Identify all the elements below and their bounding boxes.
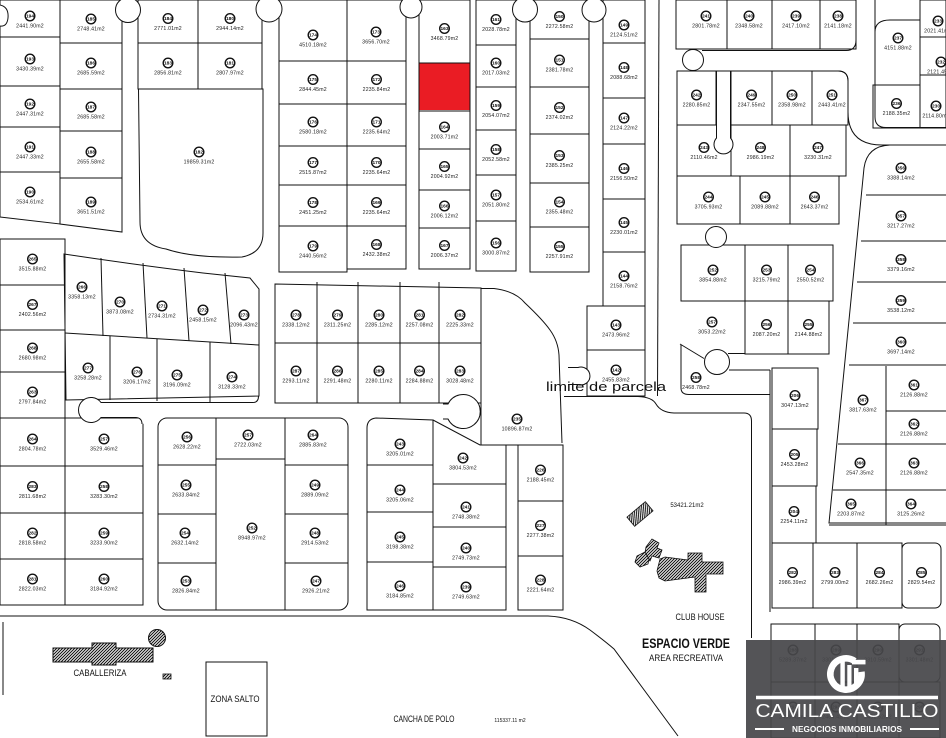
svg-text:359: 359 bbox=[897, 298, 905, 304]
svg-text:NEGOCIOS INMOBILIARIOS: NEGOCIOS INMOBILIARIOS bbox=[792, 724, 902, 734]
svg-text:2311.25m2: 2311.25m2 bbox=[324, 323, 351, 329]
svg-text:3000.87m2: 3000.87m2 bbox=[482, 251, 510, 257]
svg-text:2338.12m2: 2338.12m2 bbox=[282, 323, 310, 329]
svg-text:157: 157 bbox=[492, 193, 500, 199]
svg-text:175: 175 bbox=[309, 77, 317, 83]
svg-text:2355.48m2: 2355.48m2 bbox=[546, 210, 574, 216]
svg-text:277: 277 bbox=[84, 366, 92, 372]
svg-text:153: 153 bbox=[555, 153, 563, 159]
svg-text:2203.87m2: 2203.87m2 bbox=[837, 512, 865, 518]
svg-text:284: 284 bbox=[875, 570, 883, 576]
svg-text:CANCHA DE POLO: CANCHA DE POLO bbox=[394, 714, 455, 724]
svg-text:282: 282 bbox=[788, 570, 796, 576]
svg-text:241: 241 bbox=[702, 14, 710, 20]
svg-text:254: 254 bbox=[806, 268, 814, 274]
svg-text:159: 159 bbox=[492, 103, 500, 109]
svg-text:257: 257 bbox=[100, 437, 108, 443]
svg-text:242: 242 bbox=[459, 456, 467, 462]
svg-text:2580.18m2: 2580.18m2 bbox=[299, 130, 327, 136]
svg-text:259: 259 bbox=[100, 531, 108, 537]
svg-text:171: 171 bbox=[372, 120, 380, 126]
svg-text:161: 161 bbox=[492, 17, 500, 23]
svg-text:2088.68m2: 2088.68m2 bbox=[610, 75, 638, 81]
svg-text:2272.58m2: 2272.58m2 bbox=[546, 24, 574, 30]
svg-text:2126.88m2: 2126.88m2 bbox=[900, 432, 928, 438]
svg-text:169: 169 bbox=[372, 200, 380, 206]
svg-text:255: 255 bbox=[804, 322, 812, 328]
svg-text:2822.03m2: 2822.03m2 bbox=[19, 587, 47, 593]
svg-text:2291.48m2: 2291.48m2 bbox=[324, 379, 352, 385]
svg-text:275: 275 bbox=[173, 373, 181, 379]
svg-text:142: 142 bbox=[612, 368, 620, 374]
svg-text:2432.38m2: 2432.38m2 bbox=[363, 252, 391, 258]
svg-text:166: 166 bbox=[440, 204, 448, 210]
svg-text:CAMILA CASTILLO: CAMILA CASTILLO bbox=[756, 700, 939, 721]
svg-text:3804.53m2: 3804.53m2 bbox=[449, 466, 477, 472]
svg-text:2280.11m2: 2280.11m2 bbox=[365, 379, 392, 385]
svg-text:268: 268 bbox=[28, 346, 36, 352]
svg-text:155: 155 bbox=[555, 244, 563, 250]
svg-text:2230.01m2: 2230.01m2 bbox=[610, 230, 638, 236]
svg-text:3206.17m2: 3206.17m2 bbox=[123, 380, 151, 386]
svg-text:192: 192 bbox=[26, 102, 34, 108]
svg-text:2358.98m2: 2358.98m2 bbox=[778, 103, 806, 109]
svg-text:2889.09m2: 2889.09m2 bbox=[301, 493, 329, 499]
svg-text:2844.45m2: 2844.45m2 bbox=[299, 87, 327, 93]
svg-text:255: 255 bbox=[182, 483, 190, 489]
svg-text:3198.38m2: 3198.38m2 bbox=[386, 545, 414, 551]
svg-text:2685.58m2: 2685.58m2 bbox=[77, 115, 105, 121]
svg-text:3258.28m2: 3258.28m2 bbox=[74, 376, 102, 382]
svg-text:258: 258 bbox=[692, 375, 700, 381]
svg-text:285: 285 bbox=[917, 570, 925, 576]
svg-text:266: 266 bbox=[78, 285, 86, 291]
svg-text:150: 150 bbox=[555, 14, 563, 20]
svg-text:245: 245 bbox=[761, 195, 769, 201]
svg-text:244: 244 bbox=[396, 488, 404, 494]
svg-text:2453.28m2: 2453.28m2 bbox=[781, 462, 809, 468]
svg-text:2856.81m2: 2856.81m2 bbox=[154, 71, 182, 77]
svg-text:168: 168 bbox=[372, 242, 380, 248]
svg-text:174: 174 bbox=[309, 33, 317, 39]
svg-text:2158.76m2: 2158.76m2 bbox=[610, 284, 638, 290]
svg-text:240: 240 bbox=[462, 546, 470, 552]
svg-text:148: 148 bbox=[620, 65, 628, 71]
svg-text:2021.41m2: 2021.41m2 bbox=[924, 29, 946, 35]
svg-text:2771.01m2: 2771.01m2 bbox=[154, 26, 182, 32]
svg-text:2225.33m2: 2225.33m2 bbox=[446, 323, 474, 329]
svg-text:3215.79m2: 3215.79m2 bbox=[753, 278, 781, 284]
svg-text:279: 279 bbox=[333, 313, 341, 319]
svg-text:151: 151 bbox=[555, 58, 563, 64]
svg-text:AREA RECREATIVA: AREA RECREATIVA bbox=[649, 653, 723, 663]
svg-text:3128.33m2: 3128.33m2 bbox=[218, 385, 246, 391]
svg-text:2628.22m2: 2628.22m2 bbox=[173, 445, 201, 451]
svg-text:2235.64m2: 2235.64m2 bbox=[363, 210, 391, 216]
svg-text:2052.58m2: 2052.58m2 bbox=[482, 157, 510, 163]
svg-text:247: 247 bbox=[814, 145, 822, 151]
svg-text:2473.96m2: 2473.96m2 bbox=[602, 333, 630, 339]
svg-text:273: 273 bbox=[240, 313, 248, 319]
svg-text:164: 164 bbox=[440, 125, 448, 131]
svg-text:2550.52m2: 2550.52m2 bbox=[797, 278, 825, 284]
svg-text:3705.93m2: 3705.93m2 bbox=[695, 205, 723, 211]
svg-text:193: 193 bbox=[26, 57, 34, 63]
svg-text:163: 163 bbox=[440, 26, 448, 32]
svg-text:3515.88m2: 3515.88m2 bbox=[19, 267, 47, 273]
svg-text:3047.13m2: 3047.13m2 bbox=[781, 403, 809, 409]
svg-text:271: 271 bbox=[158, 304, 166, 310]
svg-text:245: 245 bbox=[396, 535, 404, 541]
svg-text:2110.46m2: 2110.46m2 bbox=[690, 155, 717, 161]
svg-text:2144.88m2: 2144.88m2 bbox=[795, 332, 823, 338]
svg-text:230: 230 bbox=[932, 104, 940, 110]
svg-text:2124.22m2: 2124.22m2 bbox=[610, 126, 638, 132]
svg-text:178: 178 bbox=[309, 200, 317, 206]
svg-text:227: 227 bbox=[536, 523, 544, 529]
svg-text:3538.12m2: 3538.12m2 bbox=[887, 308, 915, 314]
svg-text:3873.08m2: 3873.08m2 bbox=[106, 310, 134, 316]
svg-text:172: 172 bbox=[372, 77, 380, 83]
svg-text:182: 182 bbox=[195, 150, 203, 156]
svg-text:2221.64m2: 2221.64m2 bbox=[527, 588, 555, 594]
svg-text:188: 188 bbox=[87, 150, 95, 156]
svg-text:2748.38m2: 2748.38m2 bbox=[452, 515, 480, 521]
svg-text:2347.55m2: 2347.55m2 bbox=[738, 103, 766, 109]
svg-text:2006.37m2: 2006.37m2 bbox=[431, 253, 459, 259]
svg-text:2655.58m2: 2655.58m2 bbox=[77, 160, 105, 166]
svg-text:3233.90m2: 3233.90m2 bbox=[90, 541, 118, 547]
svg-text:282: 282 bbox=[456, 313, 464, 319]
svg-text:281: 281 bbox=[28, 577, 36, 583]
svg-text:2284.88m2: 2284.88m2 bbox=[406, 379, 434, 385]
svg-text:190: 190 bbox=[26, 190, 34, 196]
svg-text:2547.35m2: 2547.35m2 bbox=[846, 471, 874, 477]
svg-text:2926.21m2: 2926.21m2 bbox=[302, 589, 330, 595]
svg-text:264: 264 bbox=[28, 437, 36, 443]
svg-text:2235.84m2: 2235.84m2 bbox=[363, 87, 391, 93]
svg-text:2804.78m2: 2804.78m2 bbox=[19, 447, 47, 453]
svg-text:2417.10m2: 2417.10m2 bbox=[782, 24, 810, 30]
svg-text:2257.08m2: 2257.08m2 bbox=[406, 323, 434, 329]
svg-text:239: 239 bbox=[462, 585, 470, 591]
svg-text:ESPACIO VERDE: ESPACIO VERDE bbox=[642, 636, 730, 651]
svg-text:267: 267 bbox=[28, 302, 36, 308]
svg-text:364: 364 bbox=[907, 502, 915, 508]
svg-text:270: 270 bbox=[116, 300, 124, 306]
svg-text:3430.39m2: 3430.39m2 bbox=[16, 67, 44, 73]
svg-text:149: 149 bbox=[620, 23, 628, 29]
svg-text:3205.06m2: 3205.06m2 bbox=[386, 498, 414, 504]
svg-text:2722.03m2: 2722.03m2 bbox=[234, 443, 262, 449]
svg-text:284: 284 bbox=[415, 369, 423, 375]
svg-text:115337.11 m2: 115337.11 m2 bbox=[494, 718, 525, 724]
svg-text:204: 204 bbox=[790, 509, 798, 515]
svg-text:185: 185 bbox=[87, 17, 95, 23]
svg-text:2385.25m2: 2385.25m2 bbox=[546, 163, 574, 169]
svg-text:183: 183 bbox=[164, 61, 172, 67]
svg-text:2451.25m2: 2451.25m2 bbox=[299, 210, 327, 216]
svg-text:282: 282 bbox=[28, 531, 36, 537]
svg-text:360: 360 bbox=[897, 340, 905, 346]
svg-text:181: 181 bbox=[226, 61, 234, 67]
svg-text:4510.18m2: 4510.18m2 bbox=[299, 43, 327, 49]
svg-text:2156.50m2: 2156.50m2 bbox=[610, 176, 638, 182]
svg-text:238: 238 bbox=[834, 14, 842, 20]
svg-text:3379.16m2: 3379.16m2 bbox=[887, 267, 915, 273]
svg-text:2807.97m2: 2807.97m2 bbox=[216, 71, 244, 77]
svg-text:2114.80m2: 2114.80m2 bbox=[922, 114, 946, 120]
svg-text:173: 173 bbox=[372, 30, 380, 36]
svg-text:189: 189 bbox=[87, 200, 95, 206]
svg-text:limite de parcela: limite de parcela bbox=[546, 380, 666, 394]
svg-text:2141.18m2: 2141.18m2 bbox=[824, 24, 852, 30]
svg-text:2235.64m2: 2235.64m2 bbox=[363, 130, 391, 136]
svg-text:239: 239 bbox=[792, 14, 800, 20]
svg-text:2643.37m2: 2643.37m2 bbox=[801, 205, 829, 211]
svg-text:2443.41m2: 2443.41m2 bbox=[818, 103, 846, 109]
svg-text:283: 283 bbox=[28, 484, 36, 490]
svg-text:143: 143 bbox=[612, 323, 620, 329]
svg-text:236: 236 bbox=[892, 101, 900, 107]
svg-text:2124.51m2: 2124.51m2 bbox=[610, 33, 638, 39]
svg-text:246: 246 bbox=[396, 584, 404, 590]
svg-text:232: 232 bbox=[937, 60, 945, 66]
svg-text:2799.00m2: 2799.00m2 bbox=[821, 580, 849, 586]
svg-text:2441.90m2: 2441.90m2 bbox=[16, 24, 44, 30]
svg-text:184: 184 bbox=[164, 16, 172, 22]
svg-text:3697.14m2: 3697.14m2 bbox=[887, 350, 915, 356]
svg-text:272: 272 bbox=[199, 308, 207, 314]
svg-text:3529.46m2: 3529.46m2 bbox=[90, 447, 118, 453]
svg-text:2028.78m2: 2028.78m2 bbox=[482, 27, 510, 33]
svg-text:2277.38m2: 2277.38m2 bbox=[527, 533, 555, 539]
svg-text:226: 226 bbox=[536, 468, 544, 474]
svg-text:363: 363 bbox=[910, 461, 918, 467]
svg-text:2944.14m2: 2944.14m2 bbox=[216, 26, 244, 32]
svg-text:283: 283 bbox=[456, 369, 464, 375]
svg-text:281: 281 bbox=[415, 313, 423, 319]
svg-text:250: 250 bbox=[788, 93, 796, 99]
svg-text:2826.84m2: 2826.84m2 bbox=[172, 589, 200, 595]
svg-text:2801.78m2: 2801.78m2 bbox=[692, 24, 720, 30]
svg-text:2096.43m2: 2096.43m2 bbox=[230, 323, 258, 329]
svg-text:257: 257 bbox=[244, 433, 252, 439]
svg-text:2818.58m2: 2818.58m2 bbox=[19, 541, 47, 547]
svg-text:2089.88m2: 2089.88m2 bbox=[751, 205, 779, 211]
svg-text:2458.15m2: 2458.15m2 bbox=[189, 318, 217, 324]
svg-text:2003.71m2: 2003.71m2 bbox=[431, 135, 459, 141]
svg-text:145: 145 bbox=[620, 220, 628, 226]
svg-text:228: 228 bbox=[536, 578, 544, 584]
svg-text:248: 248 bbox=[756, 145, 764, 151]
svg-text:252: 252 bbox=[248, 526, 256, 532]
svg-text:260: 260 bbox=[100, 577, 108, 583]
svg-text:147: 147 bbox=[620, 116, 628, 122]
svg-text:3283.30m2: 3283.30m2 bbox=[90, 494, 118, 500]
svg-text:2749.73m2: 2749.73m2 bbox=[452, 556, 480, 562]
svg-text:2381.78m2: 2381.78m2 bbox=[546, 68, 574, 74]
svg-text:2254.11m2: 2254.11m2 bbox=[780, 519, 807, 525]
svg-text:3028.48m2: 3028.48m2 bbox=[446, 379, 474, 385]
svg-text:2017.03m2: 2017.03m2 bbox=[482, 71, 510, 77]
svg-text:158: 158 bbox=[492, 147, 500, 153]
svg-text:3184.92m2: 3184.92m2 bbox=[90, 587, 118, 593]
svg-text:144: 144 bbox=[620, 274, 628, 280]
svg-text:3388.14m2: 3388.14m2 bbox=[887, 176, 915, 182]
svg-text:180: 180 bbox=[226, 16, 234, 22]
svg-text:265: 265 bbox=[28, 257, 36, 263]
svg-text:2632.14m2: 2632.14m2 bbox=[171, 541, 199, 547]
svg-text:2986.19m2: 2986.19m2 bbox=[747, 155, 775, 161]
svg-text:365: 365 bbox=[847, 502, 855, 508]
svg-text:243: 243 bbox=[700, 145, 708, 151]
svg-text:156: 156 bbox=[492, 241, 500, 247]
svg-text:4151.88m2: 4151.88m2 bbox=[884, 46, 912, 52]
svg-text:254: 254 bbox=[181, 531, 189, 537]
svg-text:2748.41m2: 2748.41m2 bbox=[77, 27, 105, 33]
svg-text:256: 256 bbox=[762, 322, 770, 328]
svg-text:3358.13m2: 3358.13m2 bbox=[68, 295, 96, 301]
svg-text:2534.61m2: 2534.61m2 bbox=[16, 200, 44, 206]
svg-text:276: 276 bbox=[133, 370, 141, 376]
svg-text:10896.87m2: 10896.87m2 bbox=[502, 427, 533, 433]
svg-text:244: 244 bbox=[704, 195, 712, 201]
svg-text:152: 152 bbox=[555, 105, 563, 111]
svg-text:358: 358 bbox=[897, 257, 905, 263]
svg-text:235: 235 bbox=[513, 417, 521, 423]
svg-text:CLUB HOUSE: CLUB HOUSE bbox=[676, 612, 725, 623]
svg-text:206: 206 bbox=[791, 393, 799, 399]
svg-text:264: 264 bbox=[309, 433, 317, 439]
svg-text:246: 246 bbox=[810, 195, 818, 201]
svg-text:2348.58m2: 2348.58m2 bbox=[735, 24, 763, 30]
svg-text:278: 278 bbox=[292, 313, 300, 319]
svg-text:2257.91m2: 2257.91m2 bbox=[546, 254, 574, 260]
svg-text:53421.21m2: 53421.21m2 bbox=[670, 503, 704, 509]
svg-text:247: 247 bbox=[312, 579, 320, 585]
svg-text:205: 205 bbox=[790, 452, 798, 458]
svg-text:2986.39m2: 2986.39m2 bbox=[779, 580, 807, 586]
svg-text:3230.31m2: 3230.31m2 bbox=[804, 155, 832, 161]
svg-text:2051.80m2: 2051.80m2 bbox=[482, 203, 510, 209]
svg-text:3817.63m2: 3817.63m2 bbox=[849, 408, 877, 414]
svg-text:256: 256 bbox=[183, 435, 191, 441]
svg-text:253: 253 bbox=[182, 579, 190, 585]
svg-text:3184.85m2: 3184.85m2 bbox=[386, 594, 414, 600]
svg-text:240: 240 bbox=[745, 14, 753, 20]
svg-text:2885.83m2: 2885.83m2 bbox=[299, 443, 327, 449]
svg-text:2087.20m2: 2087.20m2 bbox=[753, 332, 781, 338]
svg-text:366: 366 bbox=[856, 461, 864, 467]
svg-text:3217.27m2: 3217.27m2 bbox=[887, 224, 915, 230]
svg-text:2447.33m2: 2447.33m2 bbox=[16, 155, 44, 161]
svg-text:2280.85m2: 2280.85m2 bbox=[683, 103, 711, 109]
svg-text:356: 356 bbox=[897, 166, 905, 172]
svg-text:165: 165 bbox=[440, 164, 448, 170]
svg-text:186: 186 bbox=[87, 61, 95, 67]
svg-text:362: 362 bbox=[910, 422, 918, 428]
svg-text:3125.26m2: 3125.26m2 bbox=[897, 512, 925, 518]
svg-text:241: 241 bbox=[462, 505, 470, 511]
svg-text:2004.92m2: 2004.92m2 bbox=[431, 174, 459, 180]
svg-text:237: 237 bbox=[894, 36, 902, 42]
svg-text:3468.79m2: 3468.79m2 bbox=[431, 36, 459, 42]
svg-text:ZONA SALTO: ZONA SALTO bbox=[211, 694, 260, 704]
svg-text:2440.56m2: 2440.56m2 bbox=[299, 254, 327, 260]
svg-text:251: 251 bbox=[828, 93, 836, 99]
svg-text:3854.88m2: 3854.88m2 bbox=[699, 278, 727, 284]
svg-text:179: 179 bbox=[309, 244, 317, 250]
svg-text:2285.12m2: 2285.12m2 bbox=[365, 323, 393, 329]
svg-text:167: 167 bbox=[440, 243, 448, 249]
svg-text:249: 249 bbox=[747, 93, 755, 99]
svg-text:170: 170 bbox=[372, 160, 380, 166]
svg-text:177: 177 bbox=[309, 160, 317, 166]
svg-text:2126.88m2: 2126.88m2 bbox=[900, 471, 928, 477]
svg-text:154: 154 bbox=[555, 200, 563, 206]
svg-text:2797.84m2: 2797.84m2 bbox=[19, 400, 47, 406]
svg-text:160: 160 bbox=[492, 61, 500, 67]
svg-text:249: 249 bbox=[311, 483, 319, 489]
svg-text:2749.63m2: 2749.63m2 bbox=[452, 595, 480, 601]
svg-text:2402.56m2: 2402.56m2 bbox=[19, 312, 47, 318]
svg-text:286: 286 bbox=[333, 369, 341, 375]
svg-text:2682.26m2: 2682.26m2 bbox=[866, 580, 894, 586]
svg-text:146: 146 bbox=[620, 166, 628, 172]
svg-text:2188.45m2: 2188.45m2 bbox=[527, 478, 555, 484]
svg-text:361: 361 bbox=[910, 383, 918, 389]
svg-text:2914.53m2: 2914.53m2 bbox=[301, 541, 329, 547]
svg-text:287: 287 bbox=[292, 369, 300, 375]
svg-text:3053.22m2: 3053.22m2 bbox=[698, 330, 726, 336]
svg-text:2188.35m2: 2188.35m2 bbox=[883, 111, 911, 117]
svg-text:3656.70m2: 3656.70m2 bbox=[362, 40, 390, 46]
svg-text:2734.31m2: 2734.31m2 bbox=[148, 314, 176, 320]
svg-text:280: 280 bbox=[375, 313, 383, 319]
svg-text:243: 243 bbox=[396, 442, 404, 448]
svg-text:3651.51m2: 3651.51m2 bbox=[77, 210, 105, 216]
svg-text:283: 283 bbox=[831, 570, 839, 576]
svg-text:233: 233 bbox=[934, 19, 942, 25]
svg-text:2054.07m2: 2054.07m2 bbox=[482, 113, 510, 119]
svg-text:242: 242 bbox=[692, 93, 700, 99]
svg-text:285: 285 bbox=[375, 369, 383, 375]
svg-text:357: 357 bbox=[897, 214, 905, 220]
svg-text:263: 263 bbox=[28, 390, 36, 396]
svg-text:252: 252 bbox=[709, 268, 717, 274]
svg-text:3196.09m2: 3196.09m2 bbox=[163, 383, 191, 389]
svg-text:194: 194 bbox=[26, 14, 34, 20]
svg-text:176: 176 bbox=[309, 120, 317, 126]
svg-text:CABALLERIZA: CABALLERIZA bbox=[74, 668, 127, 678]
svg-text:2680.98m2: 2680.98m2 bbox=[19, 356, 47, 362]
svg-text:2811.68m2: 2811.68m2 bbox=[19, 494, 46, 500]
svg-text:2006.12m2: 2006.12m2 bbox=[431, 214, 459, 220]
svg-text:248: 248 bbox=[311, 531, 319, 537]
svg-text:253: 253 bbox=[762, 268, 770, 274]
svg-text:2633.84m2: 2633.84m2 bbox=[172, 493, 200, 499]
svg-text:258: 258 bbox=[100, 484, 108, 490]
svg-text:19859.31m2: 19859.31m2 bbox=[184, 160, 215, 166]
svg-text:8948.97m2: 8948.97m2 bbox=[238, 536, 266, 542]
svg-text:2235.64m2: 2235.64m2 bbox=[363, 170, 391, 176]
svg-text:367: 367 bbox=[859, 398, 867, 404]
svg-text:2374.02m2: 2374.02m2 bbox=[546, 115, 574, 121]
svg-text:2829.54m2: 2829.54m2 bbox=[908, 580, 936, 586]
svg-text:187: 187 bbox=[87, 105, 95, 111]
svg-text:2515.87m2: 2515.87m2 bbox=[299, 170, 327, 176]
